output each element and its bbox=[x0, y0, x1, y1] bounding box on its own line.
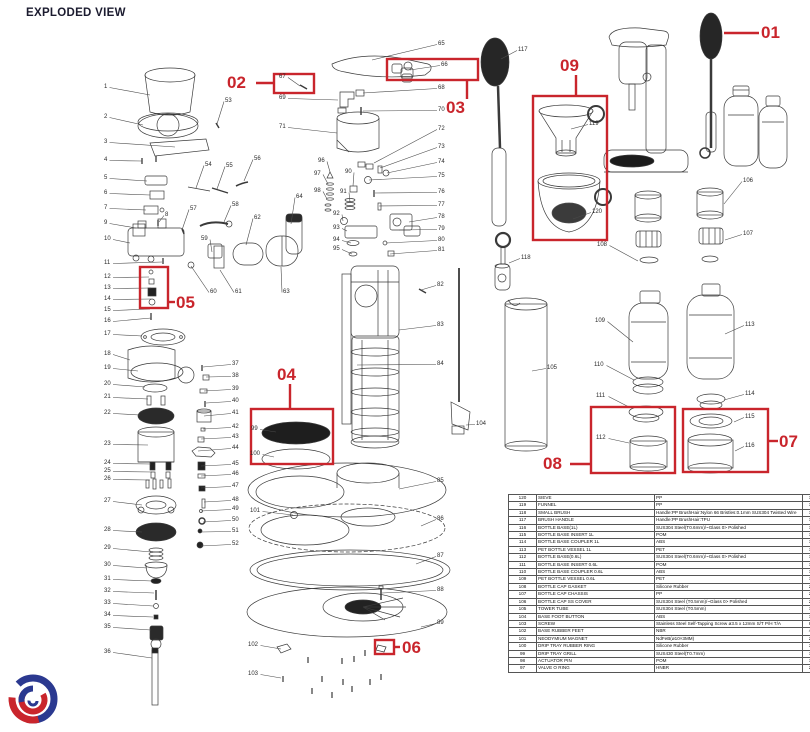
table-cell-qty: 1 bbox=[803, 657, 810, 664]
part-number-41: 41 bbox=[232, 410, 239, 417]
part-number-44: 44 bbox=[232, 445, 239, 452]
table-row: 105TOWER TUBESUS304 Steel (T0.5mm)1 bbox=[509, 606, 810, 613]
table-row: 118SMALL BRUSHHandle:PP BrushHair:Nylon … bbox=[509, 509, 810, 516]
part-number-38: 38 bbox=[232, 373, 239, 380]
table-cell-qty: 1 bbox=[803, 509, 810, 516]
part-number-103: 103 bbox=[248, 671, 258, 678]
part-number-96: 96 bbox=[318, 158, 325, 165]
table-cell-description: ACTUATOR PIN bbox=[537, 657, 655, 664]
table-cell-no: 111 bbox=[509, 561, 537, 568]
part-number-120: 120 bbox=[592, 209, 602, 216]
part-number-49: 49 bbox=[232, 506, 239, 513]
table-cell-material: SUS304 Steel(T0.6mm)/~Glass 0> Polished bbox=[655, 554, 803, 561]
table-row: 108BOTTLE CAP GASKETSilicone Rubber2 bbox=[509, 583, 810, 590]
table-cell-material: HNBR bbox=[655, 665, 803, 672]
part-number-78: 78 bbox=[438, 214, 445, 221]
table-cell-material: SUS430 Steel(T0.7mm) bbox=[655, 650, 803, 657]
table-cell-qty: 1 bbox=[803, 561, 810, 568]
table-cell-description: SCREW bbox=[537, 620, 655, 627]
table-cell-material: PP bbox=[655, 502, 803, 509]
part-number-42: 42 bbox=[232, 424, 239, 431]
table-row: 103SCREWStainless Steel Self-Tapping Scr… bbox=[509, 620, 810, 627]
table-cell-no: 97 bbox=[509, 665, 537, 672]
table-cell-qty: 2 bbox=[803, 665, 810, 672]
table-cell-description: BOTTLE CAP CHASSIS bbox=[537, 591, 655, 598]
table-cell-no: 110 bbox=[509, 569, 537, 576]
table-cell-description: BASE FOOT BUTTON bbox=[537, 613, 655, 620]
table-cell-material: POM bbox=[655, 657, 803, 664]
table-cell-material: SUS304 Steel (T0.5mm)/~Glass 0> Polished bbox=[655, 598, 803, 605]
part-number-119: 119 bbox=[589, 121, 599, 128]
part-number-62: 62 bbox=[254, 215, 261, 222]
table-cell-no: 115 bbox=[509, 532, 537, 539]
part-number-17: 17 bbox=[104, 331, 111, 338]
part-number-91: 91 bbox=[340, 189, 347, 196]
table-cell-material: ABS bbox=[655, 613, 803, 620]
callout-box-06 bbox=[375, 640, 394, 654]
table-row: 114BOTTLE BASE COUPLER 1LABS1 bbox=[509, 539, 810, 546]
part-number-56: 56 bbox=[254, 156, 261, 163]
table-cell-description: BOTTLE BASE INSERT 0.6L bbox=[537, 561, 655, 568]
part-number-93: 93 bbox=[333, 225, 340, 232]
table-cell-description: BOTTLE CAP GASKET bbox=[537, 583, 655, 590]
table-cell-no: 101 bbox=[509, 635, 537, 642]
part-number-30: 30 bbox=[104, 562, 111, 569]
callout-box-05 bbox=[140, 267, 168, 308]
part-number-39: 39 bbox=[232, 386, 239, 393]
part-number-60: 60 bbox=[210, 289, 217, 296]
part-number-88: 88 bbox=[437, 587, 444, 594]
callout-label-08: 08 bbox=[543, 455, 562, 472]
part-number-66: 66 bbox=[441, 62, 448, 69]
part-number-37: 37 bbox=[232, 361, 239, 368]
part-number-86: 86 bbox=[437, 516, 444, 523]
part-number-107: 107 bbox=[743, 231, 753, 238]
table-cell-qty: 1 bbox=[803, 524, 810, 531]
table-cell-no: 112 bbox=[509, 554, 537, 561]
table-row: 97VALVE O RINGHNBR2 bbox=[509, 665, 810, 672]
table-cell-description: BOTTLE BASE INSERT 1L bbox=[537, 532, 655, 539]
part-number-76: 76 bbox=[438, 189, 445, 196]
table-cell-qty: 1 bbox=[803, 554, 810, 561]
table-cell-no: 118 bbox=[509, 509, 537, 516]
part-number-3: 3 bbox=[104, 139, 107, 146]
part-number-51: 51 bbox=[232, 528, 239, 535]
table-cell-description: SIEVE bbox=[537, 495, 655, 502]
table-cell-material: Silicone Rubber bbox=[655, 643, 803, 650]
table-cell-material: ABS bbox=[655, 569, 803, 576]
part-number-65: 65 bbox=[438, 41, 445, 48]
part-number-73: 73 bbox=[438, 144, 445, 151]
table-cell-no: 114 bbox=[509, 539, 537, 546]
table-row: 120SIEVEPP1 bbox=[509, 495, 810, 502]
table-cell-no: 108 bbox=[509, 583, 537, 590]
table-cell-qty: 3 bbox=[803, 643, 810, 650]
part-number-64: 64 bbox=[296, 194, 303, 201]
part-number-33: 33 bbox=[104, 600, 111, 607]
part-number-63: 63 bbox=[283, 289, 290, 296]
part-number-82: 82 bbox=[437, 282, 444, 289]
table-cell-description: BOTTLE BASE(1L) bbox=[537, 524, 655, 531]
part-number-70: 70 bbox=[438, 107, 445, 114]
table-row: 100DRIP TRAY RUBBER RINGSilicone Rubber3 bbox=[509, 643, 810, 650]
table-cell-no: 119 bbox=[509, 502, 537, 509]
callout-label-09: 09 bbox=[560, 57, 579, 74]
part-number-115: 115 bbox=[745, 414, 755, 421]
part-number-85: 85 bbox=[437, 478, 444, 485]
table-cell-description: BOTTLE BASE COUPLER 1L bbox=[537, 539, 655, 546]
part-number-87: 87 bbox=[437, 553, 444, 560]
part-number-20: 20 bbox=[104, 381, 111, 388]
table-cell-no: 104 bbox=[509, 613, 537, 620]
table-cell-qty: 1 bbox=[803, 569, 810, 576]
part-number-7: 7 bbox=[104, 205, 107, 212]
table-cell-qty: 8 bbox=[803, 620, 810, 627]
part-number-8: 8 bbox=[165, 212, 168, 219]
table-cell-description: BOTTLE CAP SS COVER bbox=[537, 598, 655, 605]
part-number-25: 25 bbox=[104, 468, 111, 475]
part-number-22: 22 bbox=[104, 410, 111, 417]
table-cell-description: BRUSH HANDLE bbox=[537, 517, 655, 524]
table-cell-qty: 2 bbox=[803, 583, 810, 590]
part-number-40: 40 bbox=[232, 398, 239, 405]
part-number-10: 10 bbox=[104, 236, 111, 243]
part-number-83: 83 bbox=[437, 322, 444, 329]
table-cell-no: 105 bbox=[509, 606, 537, 613]
table-cell-material: Handle:PP BrushHair:TPU bbox=[655, 517, 803, 524]
table-cell-no: 100 bbox=[509, 643, 537, 650]
part-number-27: 27 bbox=[104, 498, 111, 505]
table-cell-qty: 1 bbox=[803, 606, 810, 613]
part-number-80: 80 bbox=[438, 237, 445, 244]
table-row: 117BRUSH HANDLEHandle:PP BrushHair:TPU1 bbox=[509, 517, 810, 524]
part-number-98: 98 bbox=[314, 188, 321, 195]
part-number-101: 101 bbox=[250, 508, 260, 515]
part-number-102: 102 bbox=[248, 642, 258, 649]
callout-label-01: 01 bbox=[761, 24, 780, 41]
part-number-16: 16 bbox=[104, 318, 111, 325]
table-row: 110BOTTLE BASE COUPLER 0.6LABS1 bbox=[509, 569, 810, 576]
part-number-31: 31 bbox=[104, 576, 111, 583]
table-cell-qty: 2 bbox=[803, 598, 810, 605]
part-number-34: 34 bbox=[104, 612, 111, 619]
part-number-2: 2 bbox=[104, 114, 107, 121]
parts-list-table: 120SIEVEPP1119FUNNELPP1118SMALL BRUSHHan… bbox=[508, 494, 810, 673]
part-number-18: 18 bbox=[104, 351, 111, 358]
part-number-117: 117 bbox=[518, 47, 528, 54]
table-cell-qty: 1 bbox=[803, 502, 810, 509]
table-cell-no: 116 bbox=[509, 524, 537, 531]
part-number-61: 61 bbox=[235, 289, 242, 296]
table-cell-qty: 2 bbox=[803, 591, 810, 598]
part-number-58: 58 bbox=[232, 202, 239, 209]
table-cell-no: 98 bbox=[509, 657, 537, 664]
part-number-29: 29 bbox=[104, 545, 111, 552]
callout-box-03 bbox=[387, 59, 478, 80]
part-number-54: 54 bbox=[205, 162, 212, 169]
part-number-75: 75 bbox=[438, 173, 445, 180]
callout-label-04: 04 bbox=[277, 366, 296, 383]
callout-label-03: 03 bbox=[446, 99, 465, 116]
part-number-111: 111 bbox=[596, 393, 605, 400]
part-number-47: 47 bbox=[232, 483, 239, 490]
table-cell-no: 99 bbox=[509, 650, 537, 657]
part-number-45: 45 bbox=[232, 461, 239, 468]
part-number-59: 59 bbox=[201, 236, 208, 243]
table-row: 107BOTTLE CAP CHASSISPP2 bbox=[509, 591, 810, 598]
part-number-21: 21 bbox=[104, 394, 111, 401]
part-number-5: 5 bbox=[104, 175, 107, 182]
part-number-77: 77 bbox=[438, 202, 445, 209]
part-number-104: 104 bbox=[476, 421, 486, 428]
part-number-79: 79 bbox=[438, 226, 445, 233]
part-number-36: 36 bbox=[104, 649, 111, 656]
table-row: 99DRIP TRAY GRILLSUS430 Steel(T0.7mm)1 bbox=[509, 650, 810, 657]
part-number-28: 28 bbox=[104, 527, 111, 534]
table-row: 111BOTTLE BASE INSERT 0.6LPOM1 bbox=[509, 561, 810, 568]
part-number-1: 1 bbox=[104, 84, 107, 91]
part-number-94: 94 bbox=[333, 237, 340, 244]
table-cell-material: POM bbox=[655, 532, 803, 539]
part-number-11: 11 bbox=[104, 260, 110, 267]
callout-box-09 bbox=[533, 96, 607, 240]
callout-label-06: 06 bbox=[402, 639, 421, 656]
part-number-90: 90 bbox=[345, 169, 352, 176]
part-number-95: 95 bbox=[333, 246, 340, 253]
table-cell-description: NEODYMIUM MAGNET bbox=[537, 635, 655, 642]
table-cell-description: PET BOTTLE VESSEL 1L bbox=[537, 546, 655, 553]
table-cell-no: 109 bbox=[509, 576, 537, 583]
exploded-view-page: EXPLODED VIEW bbox=[0, 0, 810, 732]
table-cell-material: Silicone Rubber bbox=[655, 583, 803, 590]
table-cell-no: 117 bbox=[509, 517, 537, 524]
part-number-100: 100 bbox=[250, 451, 260, 458]
table-cell-description: DRIP TRAY RUBBER RING bbox=[537, 643, 655, 650]
table-cell-description: VALVE O RING bbox=[537, 665, 655, 672]
part-number-71: 71 bbox=[279, 124, 286, 131]
part-number-19: 19 bbox=[104, 365, 111, 372]
table-cell-description: PET BOTTLE VESSEL 0.6L bbox=[537, 576, 655, 583]
part-number-108: 108 bbox=[597, 242, 607, 249]
part-number-67: 67 bbox=[279, 74, 286, 81]
part-number-112: 112 bbox=[596, 435, 606, 442]
table-cell-qty: 1 bbox=[803, 495, 810, 502]
part-number-15: 15 bbox=[104, 307, 111, 314]
table-cell-material: NBR bbox=[655, 628, 803, 635]
table-cell-qty: 1 bbox=[803, 576, 810, 583]
table-cell-qty: 1 bbox=[803, 517, 810, 524]
part-number-6: 6 bbox=[104, 190, 107, 197]
part-number-50: 50 bbox=[232, 517, 239, 524]
callout-label-07: 07 bbox=[779, 433, 798, 450]
table-cell-description: DRIP TRAY GRILL bbox=[537, 650, 655, 657]
part-number-92: 92 bbox=[333, 211, 340, 218]
table-row: 112BOTTLE BASE(0.6L)SUS304 Steel(T0.6mm)… bbox=[509, 554, 810, 561]
table-row: 115BOTTLE BASE INSERT 1LPOM1 bbox=[509, 532, 810, 539]
table-cell-no: 107 bbox=[509, 591, 537, 598]
part-number-99: 99 bbox=[251, 426, 258, 433]
part-number-74: 74 bbox=[438, 159, 445, 166]
table-cell-qty: 1 bbox=[803, 546, 810, 553]
part-number-32: 32 bbox=[104, 588, 111, 595]
part-number-72: 72 bbox=[438, 126, 445, 133]
table-cell-qty: 1 bbox=[803, 532, 810, 539]
part-number-81: 81 bbox=[438, 247, 445, 254]
table-row: 109PET BOTTLE VESSEL 0.6LPET1 bbox=[509, 576, 810, 583]
table-row: 98ACTUATOR PINPOM1 bbox=[509, 657, 810, 664]
table-row: 106BOTTLE CAP SS COVERSUS304 Steel (T0.5… bbox=[509, 598, 810, 605]
table-cell-qty: 4 bbox=[803, 628, 810, 635]
table-cell-description: BOTTLE BASE(0.6L) bbox=[537, 554, 655, 561]
table-cell-material: PP bbox=[655, 495, 803, 502]
part-number-68: 68 bbox=[438, 85, 445, 92]
callout-label-02: 02 bbox=[227, 74, 246, 91]
table-row: 102BASE RUBBER FEETNBR4 bbox=[509, 628, 810, 635]
table-cell-no: 103 bbox=[509, 620, 537, 627]
table-cell-description: SMALL BRUSH bbox=[537, 509, 655, 516]
table-cell-material: Stainless Steel Self-Tapping Screw ø3.5 … bbox=[655, 620, 803, 627]
table-cell-description: BOTTLE BASE COUPLER 0.6L bbox=[537, 569, 655, 576]
table-cell-description: BASE RUBBER FEET bbox=[537, 628, 655, 635]
part-number-69: 69 bbox=[279, 95, 286, 102]
callout-box-04 bbox=[251, 409, 333, 464]
part-number-114: 114 bbox=[745, 391, 755, 398]
part-number-12: 12 bbox=[104, 274, 111, 281]
table-cell-no: 113 bbox=[509, 546, 537, 553]
table-cell-material: PET bbox=[655, 576, 803, 583]
part-number-97: 97 bbox=[314, 171, 321, 178]
table-row: 101NEODYMIUM MAGNETNdFeB(ø10×3MM)2 bbox=[509, 635, 810, 642]
part-number-55: 55 bbox=[226, 163, 233, 170]
part-number-24: 24 bbox=[104, 460, 111, 467]
table-cell-material: PP bbox=[655, 591, 803, 598]
part-number-53: 53 bbox=[225, 98, 232, 105]
table-row: 104BASE FOOT BUTTONABS1 bbox=[509, 613, 810, 620]
table-cell-material: ABS bbox=[655, 539, 803, 546]
callout-box-07 bbox=[683, 409, 768, 472]
part-number-84: 84 bbox=[437, 361, 444, 368]
table-cell-material: NdFeB(ø10×3MM) bbox=[655, 635, 803, 642]
part-number-4: 4 bbox=[104, 157, 107, 164]
table-cell-qty: 1 bbox=[803, 613, 810, 620]
table-cell-material: Handle:PP BrushHair:Nylon 66 Bristles:0.… bbox=[655, 509, 803, 516]
table-cell-material: PET bbox=[655, 546, 803, 553]
table-row: 119FUNNELPP1 bbox=[509, 502, 810, 509]
table-cell-qty: 1 bbox=[803, 539, 810, 546]
part-number-14: 14 bbox=[104, 296, 111, 303]
table-cell-qty: 2 bbox=[803, 635, 810, 642]
part-number-46: 46 bbox=[232, 471, 239, 478]
table-cell-material: SUS304 Steel(T0.6mm)/~Glass 0> Polished bbox=[655, 524, 803, 531]
part-number-13: 13 bbox=[104, 285, 111, 292]
part-number-35: 35 bbox=[104, 624, 111, 631]
table-cell-material: SUS304 Steel (T0.5mm) bbox=[655, 606, 803, 613]
table-cell-qty: 1 bbox=[803, 650, 810, 657]
part-number-110: 110 bbox=[594, 362, 604, 369]
part-number-109: 109 bbox=[595, 318, 605, 325]
part-number-57: 57 bbox=[190, 206, 197, 213]
table-row: 116BOTTLE BASE(1L)SUS304 Steel(T0.6mm)/~… bbox=[509, 524, 810, 531]
callout-label-05: 05 bbox=[176, 294, 195, 311]
part-number-26: 26 bbox=[104, 476, 111, 483]
table-row: 113PET BOTTLE VESSEL 1LPET1 bbox=[509, 546, 810, 553]
part-number-113: 113 bbox=[745, 322, 755, 329]
part-number-9: 9 bbox=[104, 220, 107, 227]
table-cell-description: FUNNEL bbox=[537, 502, 655, 509]
table-cell-description: TOWER TUBE bbox=[537, 606, 655, 613]
part-number-48: 48 bbox=[232, 497, 239, 504]
part-number-118: 118 bbox=[521, 255, 531, 262]
part-number-106: 106 bbox=[743, 178, 753, 185]
table-cell-no: 106 bbox=[509, 598, 537, 605]
part-number-105: 105 bbox=[547, 365, 557, 372]
part-number-43: 43 bbox=[232, 434, 239, 441]
part-number-23: 23 bbox=[104, 441, 111, 448]
part-number-89: 89 bbox=[437, 620, 444, 627]
table-cell-no: 120 bbox=[509, 495, 537, 502]
table-cell-no: 102 bbox=[509, 628, 537, 635]
part-number-52: 52 bbox=[232, 541, 239, 548]
table-cell-material: POM bbox=[655, 561, 803, 568]
part-number-116: 116 bbox=[745, 443, 755, 450]
